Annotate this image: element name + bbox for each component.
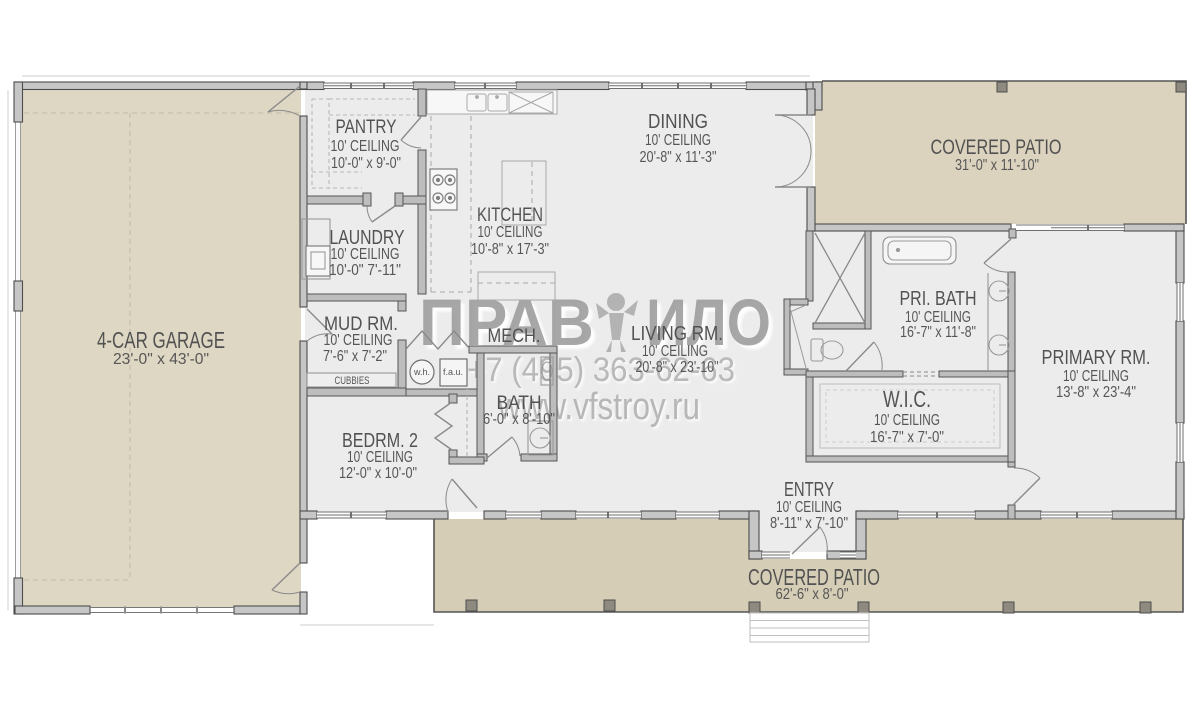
svg-text:PRI. BATH: PRI. BATH — [900, 288, 977, 310]
svg-text:62'-6" x 8'-0": 62'-6" x 8'-0" — [776, 586, 849, 603]
svg-text:KITCHEN: KITCHEN — [477, 205, 543, 226]
svg-text:31'-0" x 11'-10": 31'-0" x 11'-10" — [955, 157, 1039, 174]
svg-text:20'-8" x 23'-10": 20'-8" x 23'-10" — [636, 359, 719, 376]
svg-text:8'-11" x 7'-10": 8'-11" x 7'-10" — [770, 515, 848, 532]
svg-text:10'-0" x 9'-0": 10'-0" x 9'-0" — [331, 155, 401, 172]
svg-text:16'-7" x 11'-8": 16'-7" x 11'-8" — [900, 324, 976, 341]
svg-text:MECH.: MECH. — [488, 326, 541, 347]
svg-text:CUBBIES: CUBBIES — [335, 375, 370, 387]
svg-text:w.h.: w.h. — [413, 367, 430, 377]
svg-text:4-CAR GARAGE: 4-CAR GARAGE — [97, 327, 225, 353]
svg-text:13'-8" x 23'-4": 13'-8" x 23'-4" — [1056, 384, 1136, 401]
svg-text:PRIMARY RM.: PRIMARY RM. — [1042, 347, 1151, 369]
svg-text:10' CEILING: 10' CEILING — [645, 132, 711, 149]
svg-text:10' CEILING: 10' CEILING — [776, 499, 842, 516]
svg-text:ENTRY: ENTRY — [784, 479, 834, 501]
svg-text:16'-7" x 7'-0": 16'-7" x 7'-0" — [870, 429, 944, 446]
svg-text:10' CEILING: 10' CEILING — [478, 224, 543, 241]
svg-text:W.I.C.: W.I.C. — [883, 386, 931, 412]
svg-text:f.a.u.: f.a.u. — [443, 367, 463, 377]
svg-text:6'-0" x 8'-10": 6'-0" x 8'-10" — [483, 411, 555, 428]
svg-text:10' CEILING: 10' CEILING — [1063, 368, 1129, 385]
svg-text:10' CEILING: 10' CEILING — [347, 449, 413, 466]
svg-text:7'-6" x 7'-2": 7'-6" x 7'-2" — [323, 348, 387, 365]
svg-text:23'-0" x 43'-0": 23'-0" x 43'-0" — [113, 351, 209, 368]
svg-text:10' CEILING: 10' CEILING — [331, 246, 400, 263]
svg-text:DINING: DINING — [648, 111, 708, 133]
svg-text:10' CEILING: 10' CEILING — [642, 343, 708, 360]
svg-text:COVERED PATIO: COVERED PATIO — [931, 136, 1062, 159]
svg-text:10'-8" x 17'-3": 10'-8" x 17'-3" — [471, 241, 549, 258]
svg-text:LIVING RM.: LIVING RM. — [631, 323, 723, 345]
svg-text:10' CEILING: 10' CEILING — [874, 412, 940, 429]
svg-text:20'-8" x 11'-3": 20'-8" x 11'-3" — [640, 149, 717, 166]
svg-text:12'-0" x 10'-0": 12'-0" x 10'-0" — [339, 465, 417, 482]
svg-text:PANTRY: PANTRY — [336, 117, 397, 138]
svg-text:10' CEILING: 10' CEILING — [331, 138, 400, 155]
svg-text:10' CEILING: 10' CEILING — [324, 332, 393, 349]
svg-text:10'-0" 7'-11": 10'-0" 7'-11" — [329, 262, 401, 279]
